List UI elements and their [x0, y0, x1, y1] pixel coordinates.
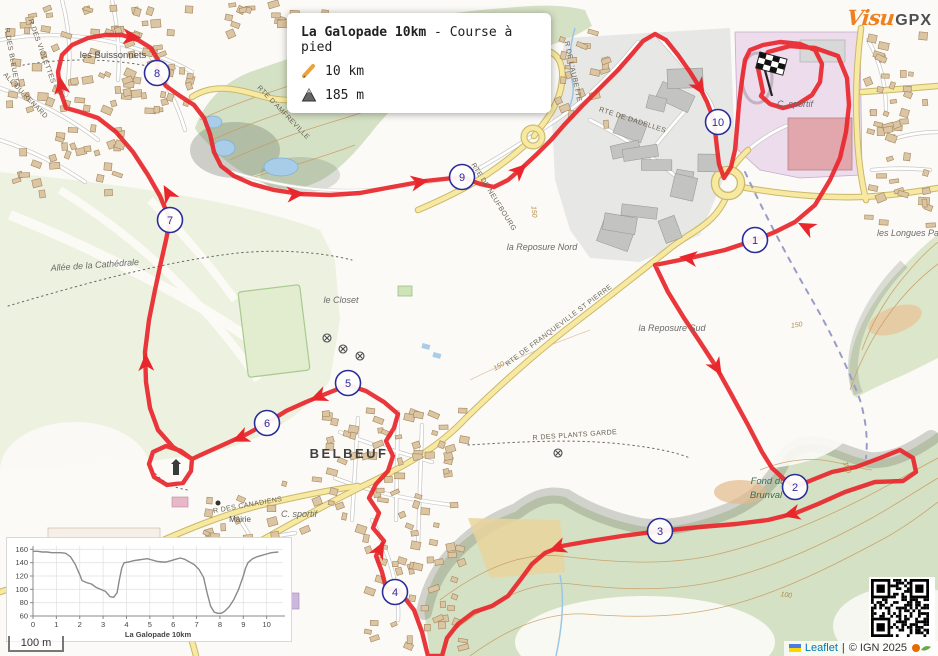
map-label: C. sportif	[777, 99, 815, 109]
km-marker[interactable]: 3	[648, 519, 673, 544]
distance-pencil-icon	[301, 63, 317, 79]
svg-text:10: 10	[262, 620, 270, 629]
km-marker[interactable]: 5	[336, 371, 361, 396]
attribution-separator: |	[842, 642, 845, 654]
map-label: les Longues Pa	[877, 228, 938, 238]
geoportail-icon	[911, 643, 933, 653]
svg-text:9: 9	[459, 172, 465, 184]
svg-text:3: 3	[657, 526, 663, 538]
gate-icon	[554, 449, 562, 457]
km-marker[interactable]: 1	[743, 228, 768, 253]
km-marker[interactable]: 8	[145, 61, 170, 86]
svg-text:5: 5	[148, 620, 152, 629]
map-label: la Reposure Nord	[507, 242, 579, 252]
km-marker[interactable]: 10	[706, 110, 731, 135]
map-label: la Reposure Sud	[638, 323, 706, 333]
elevation-mountain-icon	[301, 87, 317, 103]
map-label: BELBEUF	[310, 446, 389, 461]
track-elevation-row: 185 m	[301, 87, 537, 103]
svg-text:8: 8	[218, 620, 222, 629]
svg-text:8: 8	[154, 68, 160, 80]
map-label: C. sportif	[281, 509, 319, 519]
svg-text:100: 100	[15, 585, 28, 594]
svg-text:140: 140	[15, 558, 28, 567]
km-marker[interactable]: 7	[158, 208, 183, 233]
map-label: le Closet	[323, 295, 359, 305]
leaflet-flag-icon	[789, 644, 801, 652]
km-marker[interactable]: 6	[255, 411, 280, 436]
attribution-bar: Leaflet | © IGN 2025	[784, 641, 938, 656]
svg-text:4: 4	[124, 620, 128, 629]
svg-text:4: 4	[392, 587, 398, 599]
svg-text:80: 80	[20, 598, 28, 607]
svg-text:10: 10	[712, 117, 724, 129]
leaflet-link[interactable]: Leaflet	[805, 642, 838, 654]
svg-text:6: 6	[171, 620, 175, 629]
svg-text:7: 7	[167, 215, 173, 227]
svg-text:3: 3	[101, 620, 105, 629]
svg-text:5: 5	[345, 378, 351, 390]
visugpx-logo-gpx: GPX	[895, 12, 932, 30]
track-info-box: La Galopade 10km - Course à pied 10 km 1…	[287, 13, 551, 113]
svg-text:1: 1	[54, 620, 58, 629]
svg-text:9: 9	[241, 620, 245, 629]
svg-text:0: 0	[31, 620, 35, 629]
map-label: Fond du	[751, 476, 787, 487]
visugpx-logo-visu: Visu	[846, 5, 896, 30]
visugpx-logo[interactable]: Visu GPX	[847, 5, 932, 30]
svg-text:6: 6	[264, 418, 270, 430]
svg-text:7: 7	[194, 620, 198, 629]
svg-text:120: 120	[15, 572, 28, 581]
svg-text:La Galopade 10km: La Galopade 10km	[125, 630, 192, 639]
map-label: Brunval	[750, 490, 783, 501]
map-label: les Buissonnets	[80, 50, 147, 61]
map-canvas[interactable]: +++++ +++++ +++++ +++++	[0, 0, 938, 656]
track-distance: 10 km	[325, 64, 364, 79]
svg-text:2: 2	[78, 620, 82, 629]
ign-copyright: © IGN 2025	[849, 642, 907, 654]
svg-text:2: 2	[792, 482, 798, 494]
elevation-profile-panel: 6080100120140160012345678910La Galopade …	[6, 537, 292, 642]
km-marker[interactable]: 4	[383, 580, 408, 605]
gate-icon	[356, 352, 364, 360]
svg-text:1: 1	[752, 235, 758, 247]
track-title: La Galopade 10km - Course à pied	[301, 25, 537, 55]
elevation-chart: 6080100120140160012345678910La Galopade …	[7, 538, 289, 639]
gate-icon	[323, 334, 331, 342]
track-distance-row: 10 km	[301, 63, 537, 79]
poi-dot	[216, 501, 221, 506]
track-elevation-gain: 185 m	[325, 88, 364, 103]
gate-icon	[339, 345, 347, 353]
map-label: Mairie	[229, 515, 251, 524]
svg-text:160: 160	[15, 545, 28, 554]
svg-text:60: 60	[20, 612, 28, 621]
map-scale-bar: 100 m	[8, 636, 64, 652]
km-marker[interactable]: 2	[783, 475, 808, 500]
km-marker[interactable]: 9	[450, 165, 475, 190]
qr-code	[869, 577, 935, 643]
map-label: 150	[529, 206, 537, 218]
